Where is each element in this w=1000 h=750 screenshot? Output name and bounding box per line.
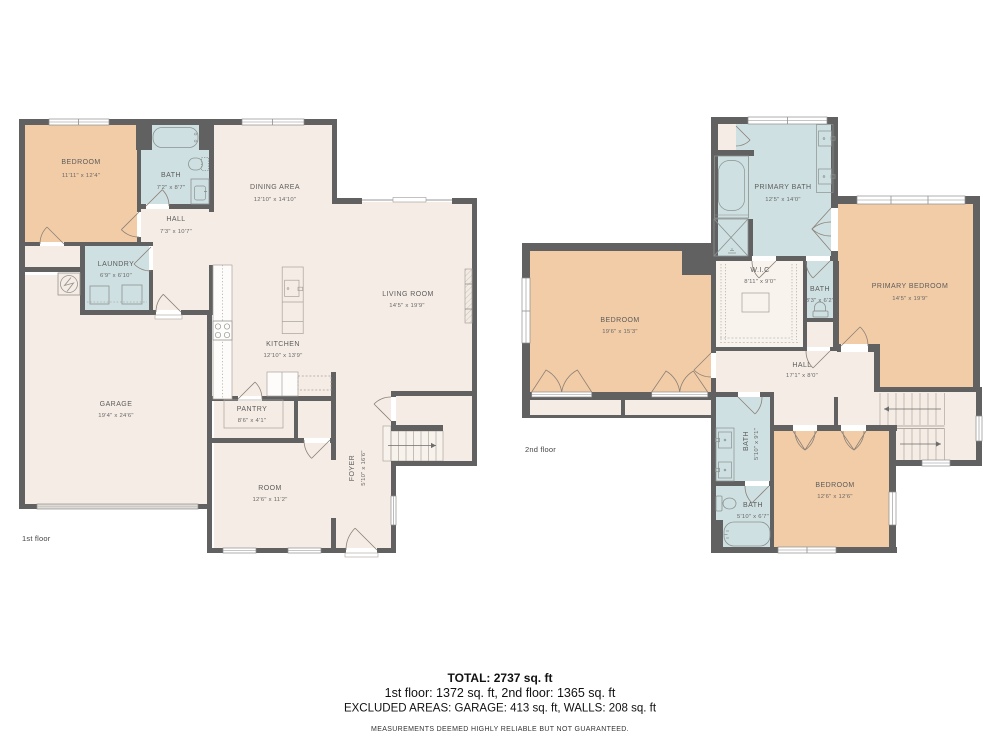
svg-text:HALL: HALL — [792, 362, 811, 369]
svg-text:BATH: BATH — [161, 172, 181, 179]
svg-text:MEASUREMENTS DEEMED HIGHLY REL: MEASUREMENTS DEEMED HIGHLY RELIABLE BUT … — [371, 726, 629, 733]
svg-text:8'6" x 4'1": 8'6" x 4'1" — [238, 418, 267, 424]
svg-text:ROOM: ROOM — [258, 485, 282, 492]
svg-text:6'9" x 6'10": 6'9" x 6'10" — [100, 273, 132, 279]
svg-text:19'4" x 24'6": 19'4" x 24'6" — [98, 413, 134, 419]
svg-text:PRIMARY BEDROOM: PRIMARY BEDROOM — [872, 283, 949, 290]
svg-text:GARAGE: GARAGE — [100, 401, 133, 408]
svg-text:19'6" x 15'3": 19'6" x 15'3" — [602, 329, 638, 335]
svg-text:5'10" x 9'1": 5'10" x 9'1" — [754, 428, 760, 460]
svg-text:2nd floor: 2nd floor — [525, 445, 556, 454]
svg-text:HALL: HALL — [166, 216, 185, 223]
svg-text:BATH: BATH — [743, 502, 763, 509]
svg-text:5'10" x 6'7": 5'10" x 6'7" — [737, 514, 769, 520]
svg-text:5'10" x 16'6": 5'10" x 16'6" — [361, 450, 367, 486]
svg-text:FOYER: FOYER — [349, 455, 356, 481]
svg-text:DINING AREA: DINING AREA — [250, 184, 300, 191]
svg-text:LIVING ROOM: LIVING ROOM — [382, 291, 434, 298]
svg-text:TOTAL: 2737 sq. ft: TOTAL: 2737 sq. ft — [448, 671, 553, 685]
svg-text:BATH: BATH — [810, 286, 830, 293]
svg-text:12'6" x 12'6": 12'6" x 12'6" — [817, 494, 853, 500]
svg-text:8'11" x 9'0": 8'11" x 9'0" — [744, 279, 776, 285]
svg-text:LAUNDRY: LAUNDRY — [98, 261, 134, 268]
svg-text:12'10" x 13'9": 12'10" x 13'9" — [263, 353, 302, 359]
svg-text:14'5" x 19'9": 14'5" x 19'9" — [892, 296, 928, 302]
svg-text:12'5" x 14'0": 12'5" x 14'0" — [765, 197, 801, 203]
svg-text:W.I.C: W.I.C — [750, 267, 769, 274]
svg-text:BEDROOM: BEDROOM — [815, 482, 854, 489]
svg-text:BATH: BATH — [743, 431, 750, 451]
svg-text:KITCHEN: KITCHEN — [266, 341, 300, 348]
svg-text:17'1" x 8'0": 17'1" x 8'0" — [786, 373, 818, 379]
svg-text:BEDROOM: BEDROOM — [61, 159, 100, 166]
svg-text:PANTRY: PANTRY — [237, 406, 267, 413]
svg-text:BEDROOM: BEDROOM — [600, 317, 639, 324]
svg-text:1st floor: 1372 sq. ft, 2nd fl: 1st floor: 1372 sq. ft, 2nd floor: 1365 … — [385, 686, 616, 700]
svg-text:7'3" x 10'7": 7'3" x 10'7" — [160, 229, 192, 235]
svg-text:3'3" x 6'2": 3'3" x 6'2" — [806, 298, 835, 304]
svg-text:12'10" x 14'10": 12'10" x 14'10" — [254, 197, 297, 203]
svg-text:EXCLUDED AREAS: GARAGE: 413 sq: EXCLUDED AREAS: GARAGE: 413 sq. ft, WALL… — [344, 703, 657, 715]
svg-text:1st floor: 1st floor — [22, 534, 51, 543]
svg-text:PRIMARY BATH: PRIMARY BATH — [754, 184, 811, 191]
svg-text:11'11" x 12'4": 11'11" x 12'4" — [62, 173, 100, 179]
svg-text:12'6" x 11'2": 12'6" x 11'2" — [252, 497, 287, 503]
svg-text:7'2" x 8'7": 7'2" x 8'7" — [157, 185, 186, 191]
svg-text:14'5" x 19'9": 14'5" x 19'9" — [389, 303, 425, 309]
